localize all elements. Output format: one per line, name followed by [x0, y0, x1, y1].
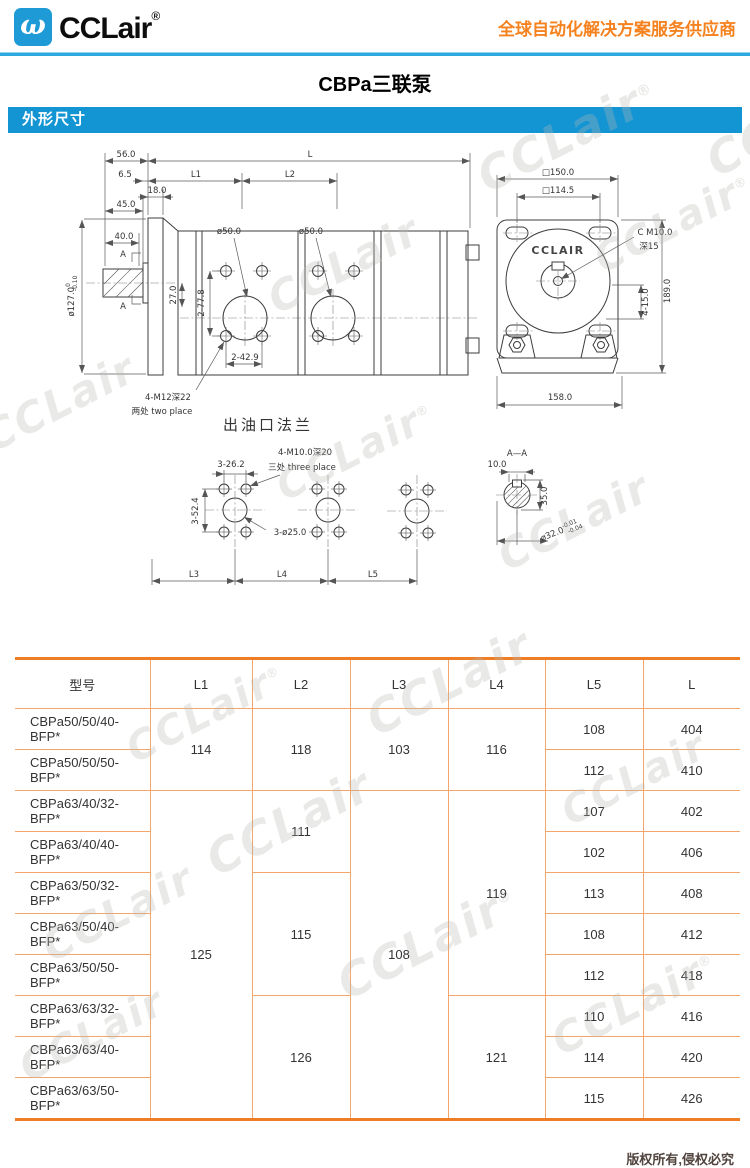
dim-35-label: 35.0 [540, 487, 550, 506]
brand-wordmark: CCLair® [59, 9, 160, 46]
cell-l: 406 [643, 832, 740, 873]
cell-l5: 112 [545, 955, 643, 996]
dim-2-42-label: 2-42.9 [231, 353, 258, 363]
column-header-l2: L2 [252, 659, 350, 709]
outlet-title: 出油口法兰 [223, 416, 313, 434]
cell-l2: 118 [252, 709, 350, 791]
cell-l3: 108 [350, 791, 448, 1120]
section-aa-title: A—A [507, 449, 527, 459]
cell-l: 426 [643, 1078, 740, 1120]
dim-45-label: 45.0 [117, 200, 136, 210]
cell-l5: 112 [545, 750, 643, 791]
dim-6p5-label: 6.5 [118, 170, 132, 180]
cell-l: 420 [643, 1037, 740, 1078]
cell-l: 418 [643, 955, 740, 996]
cell-l5: 108 [545, 914, 643, 955]
note-depth15-label: 深15 [639, 242, 658, 252]
note-cm10-label: C M10.0 [638, 228, 673, 238]
cell-l4: 121 [448, 996, 545, 1120]
column-header-l5: L5 [545, 659, 643, 709]
cell-model: CBPa63/63/40-BFP* [15, 1037, 150, 1078]
cell-l5: 113 [545, 873, 643, 914]
table-header-row: 型号 L1 L2 L3 L4 L5 L [15, 659, 740, 709]
cell-l5: 108 [545, 709, 643, 750]
dim-L2-label: L2 [285, 170, 295, 180]
cell-l: 410 [643, 750, 740, 791]
dim-18-label: 18.0 [148, 186, 167, 196]
copyright-notice: 版权所有,侵权必究 [0, 1149, 750, 1168]
cell-model: CBPa50/50/40-BFP* [15, 709, 150, 750]
cell-l5: 115 [545, 1078, 643, 1120]
section-a-bottom-label: A [120, 302, 126, 312]
cell-model: CBPa63/50/50-BFP* [15, 955, 150, 996]
column-header-l3: L3 [350, 659, 448, 709]
cell-l5: 107 [545, 791, 643, 832]
dim-27-label: 27.0 [169, 286, 179, 305]
column-header-l4: L4 [448, 659, 545, 709]
header-slogan: 全球自动化解决方案服务供应商 [498, 15, 736, 40]
cell-l5: 102 [545, 832, 643, 873]
cell-l1: 114 [150, 709, 252, 791]
note-two-place-label: 两处 two place [132, 406, 193, 417]
dim-10-label: 10.0 [488, 460, 507, 470]
dim-L4-label: L4 [277, 570, 287, 580]
dim-3-dia25-label: 3-ø25.0 [274, 528, 307, 538]
end-view-brand-label: CCLAIR [531, 244, 584, 257]
technical-drawing: 56.0 L 6.5 L1 L2 18.0 45.0 40.0 A A ø127… [0, 133, 750, 643]
cell-l5: 114 [545, 1037, 643, 1078]
cell-l2: 111 [252, 791, 350, 873]
dim-L-label: L [308, 150, 313, 160]
dim-dia32-label: ø32.0 [539, 526, 565, 544]
dimension-table: 型号 L1 L2 L3 L4 L5 L CBPa50/50/40-BFP* 11… [15, 657, 740, 1121]
cell-l4: 116 [448, 709, 545, 791]
column-header-model: 型号 [15, 659, 150, 709]
dim-2-77-label: 2-77.8 [197, 289, 207, 316]
cell-model: CBPa63/40/40-BFP* [15, 832, 150, 873]
table-row: CBPa63/40/32-BFP* 125 111 108 119 107 40… [15, 791, 740, 832]
cell-model: CBPa63/50/32-BFP* [15, 873, 150, 914]
dim-4-15-label: 4-15.0 [641, 288, 651, 315]
note-m12-label: 4-M12深22 [145, 393, 191, 403]
brand-logo: ω CCLair® [14, 8, 160, 46]
dia127-tol-lo: -0.10 [72, 275, 79, 291]
outlet-flange-detail: 出油口法兰 3-26.2 4-M10.0深20 三处 three place [152, 416, 447, 585]
column-header-l1: L1 [150, 659, 252, 709]
dim-L1-label: L1 [191, 170, 201, 180]
cell-l4: 119 [448, 791, 545, 996]
svg-text:ø32.0-0.01-0.04: ø32.0-0.01-0.04 [539, 516, 584, 545]
side-bolt-holes [217, 262, 363, 345]
dim-3-52-label: 3-52.4 [191, 497, 201, 524]
section-aa-view: A—A 10.0 35.0 ø32.0-0.01-0.04 [488, 449, 585, 546]
note-three-place-label: 三处 three place [268, 462, 336, 473]
cell-model: CBPa63/50/40-BFP* [15, 914, 150, 955]
cell-l3: 103 [350, 709, 448, 791]
cell-l: 416 [643, 996, 740, 1037]
cell-l: 404 [643, 709, 740, 750]
page-title: CBPa三联泵 [0, 68, 750, 97]
cell-l2: 115 [252, 873, 350, 996]
note-m10-label: 4-M10.0深20 [278, 448, 332, 458]
cell-l: 412 [643, 914, 740, 955]
dim-sq150-label: □150.0 [542, 168, 574, 178]
cell-model: CBPa50/50/50-BFP* [15, 750, 150, 791]
page-header: ω CCLair® 全球自动化解决方案服务供应商 [0, 0, 750, 52]
dim-3-26-label: 3-26.2 [217, 460, 244, 470]
cell-l: 402 [643, 791, 740, 832]
cell-l1: 125 [150, 791, 252, 1120]
dim-sq114-label: □114.5 [542, 186, 574, 196]
logo-glyph-icon: ω [20, 12, 46, 39]
table-row: CBPa50/50/40-BFP* 114 118 103 116 108 40… [15, 709, 740, 750]
cell-model: CBPa63/63/32-BFP* [15, 996, 150, 1037]
cell-l: 408 [643, 873, 740, 914]
dim-dia50a-label: ø50.0 [217, 227, 241, 237]
column-header-l: L [643, 659, 740, 709]
side-view: 56.0 L 6.5 L1 L2 18.0 45.0 40.0 A A ø127… [65, 150, 479, 417]
section-banner: 外形尺寸 [8, 107, 742, 133]
section-a-top-label: A [120, 250, 126, 260]
registered-mark: ® [151, 9, 160, 23]
dim-L5-label: L5 [368, 570, 378, 580]
end-view: CCLAIR □150.0 □114.5 C M10.0 深15 4-15.0 … [497, 168, 673, 409]
cell-model: CBPa63/63/50-BFP* [15, 1078, 150, 1120]
dim-40-label: 40.0 [115, 232, 134, 242]
dim-L3-label: L3 [189, 570, 199, 580]
logo-tile-icon: ω [14, 8, 52, 46]
dim-56-label: 56.0 [117, 150, 136, 160]
dim-189-label: 189.0 [663, 279, 673, 303]
cell-model: CBPa63/40/32-BFP* [15, 791, 150, 832]
header-divider [0, 52, 750, 56]
svg-text:ø127.00-0.10: ø127.00-0.10 [65, 275, 79, 316]
cell-l5: 110 [545, 996, 643, 1037]
dim-dia50b-label: ø50.0 [299, 227, 323, 237]
cell-l2: 126 [252, 996, 350, 1120]
dim-158-label: 158.0 [548, 393, 572, 403]
dia127-tol-hi: 0 [65, 283, 72, 287]
